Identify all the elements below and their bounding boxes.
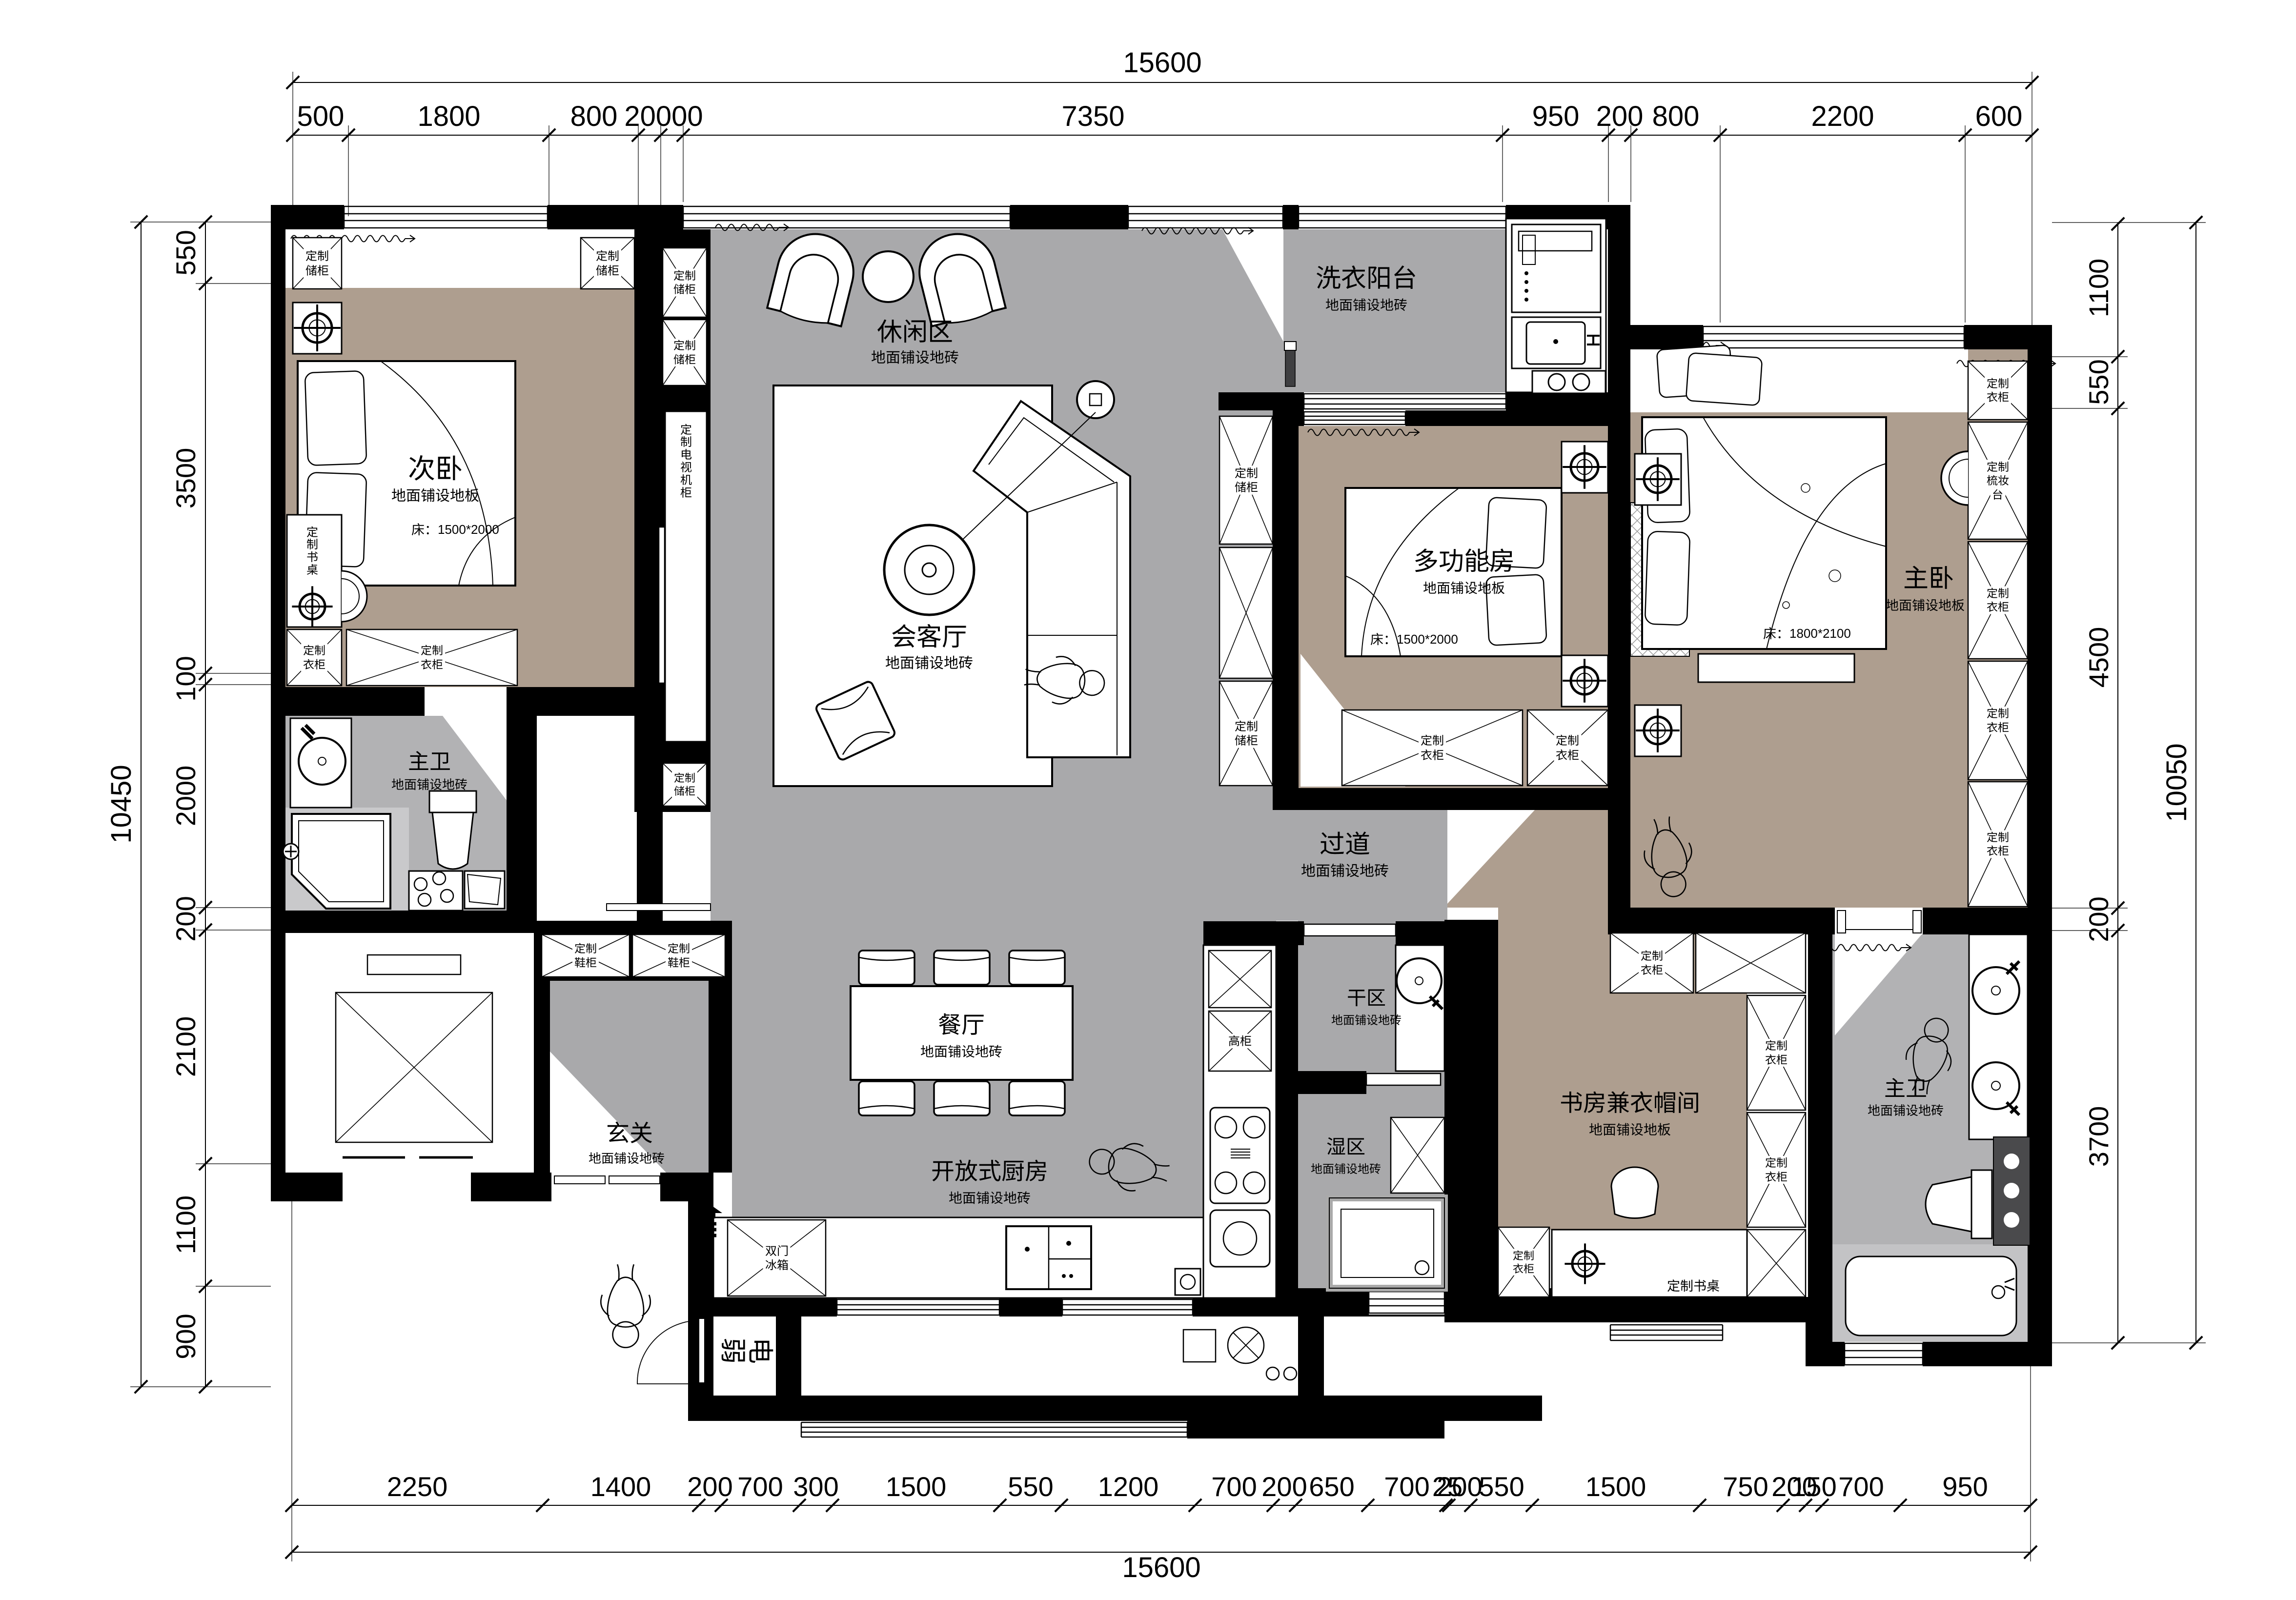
- svg-text:200: 200: [1437, 1471, 1482, 1502]
- svg-text:1200: 1200: [1098, 1471, 1159, 1502]
- svg-text:1500*2000: 1500*2000: [1397, 632, 1458, 647]
- svg-text:7350: 7350: [1061, 101, 1124, 132]
- svg-text:2000: 2000: [170, 766, 201, 827]
- svg-text:550: 550: [1479, 1471, 1524, 1502]
- svg-text:200: 200: [687, 1471, 732, 1502]
- svg-text:200: 200: [1596, 101, 1644, 132]
- svg-text:1100: 1100: [170, 1195, 201, 1254]
- svg-text:300: 300: [793, 1471, 838, 1502]
- svg-text:3700: 3700: [2083, 1106, 2114, 1167]
- svg-text:900: 900: [170, 1314, 201, 1359]
- svg-text:700: 700: [1384, 1471, 1429, 1502]
- svg-text:2200: 2200: [1811, 101, 1874, 132]
- svg-text:10050: 10050: [2161, 743, 2193, 822]
- svg-text:800: 800: [570, 101, 618, 132]
- svg-text:10450: 10450: [105, 765, 137, 843]
- svg-text:1800: 1800: [417, 101, 480, 132]
- svg-text:1500: 1500: [886, 1471, 947, 1502]
- svg-text:200: 200: [2083, 896, 2114, 942]
- svg-text:750: 750: [1723, 1471, 1768, 1502]
- svg-text:15600: 15600: [1123, 47, 1201, 79]
- svg-text:1400: 1400: [590, 1471, 651, 1502]
- svg-text:800: 800: [1652, 101, 1700, 132]
- svg-text:15600: 15600: [1122, 1552, 1200, 1583]
- svg-text:1500: 1500: [1585, 1471, 1646, 1502]
- svg-text:100: 100: [170, 656, 201, 701]
- svg-text:500: 500: [297, 101, 345, 132]
- svg-text:3500: 3500: [170, 448, 201, 509]
- svg-text:600: 600: [1975, 101, 2023, 132]
- svg-text:700: 700: [1211, 1471, 1257, 1502]
- svg-text:700: 700: [737, 1471, 783, 1502]
- svg-text:20000: 20000: [624, 101, 703, 132]
- svg-text:1800*2100: 1800*2100: [1789, 626, 1851, 641]
- svg-text:1500*2000: 1500*2000: [438, 522, 499, 537]
- svg-text:700: 700: [1838, 1471, 1884, 1502]
- svg-text:650: 650: [1309, 1471, 1354, 1502]
- svg-text:550: 550: [170, 230, 201, 275]
- svg-text:1100: 1100: [2083, 259, 2114, 317]
- svg-text:550: 550: [2083, 359, 2114, 405]
- svg-text:4500: 4500: [2083, 627, 2114, 688]
- svg-text:200: 200: [1261, 1471, 1307, 1502]
- svg-text:2100: 2100: [170, 1016, 201, 1077]
- svg-text:2250: 2250: [387, 1471, 448, 1502]
- svg-text:150: 150: [1791, 1471, 1836, 1502]
- svg-text:550: 550: [1008, 1471, 1053, 1502]
- svg-text:200: 200: [170, 896, 201, 941]
- svg-text:950: 950: [1942, 1471, 1988, 1502]
- svg-text:950: 950: [1532, 101, 1580, 132]
